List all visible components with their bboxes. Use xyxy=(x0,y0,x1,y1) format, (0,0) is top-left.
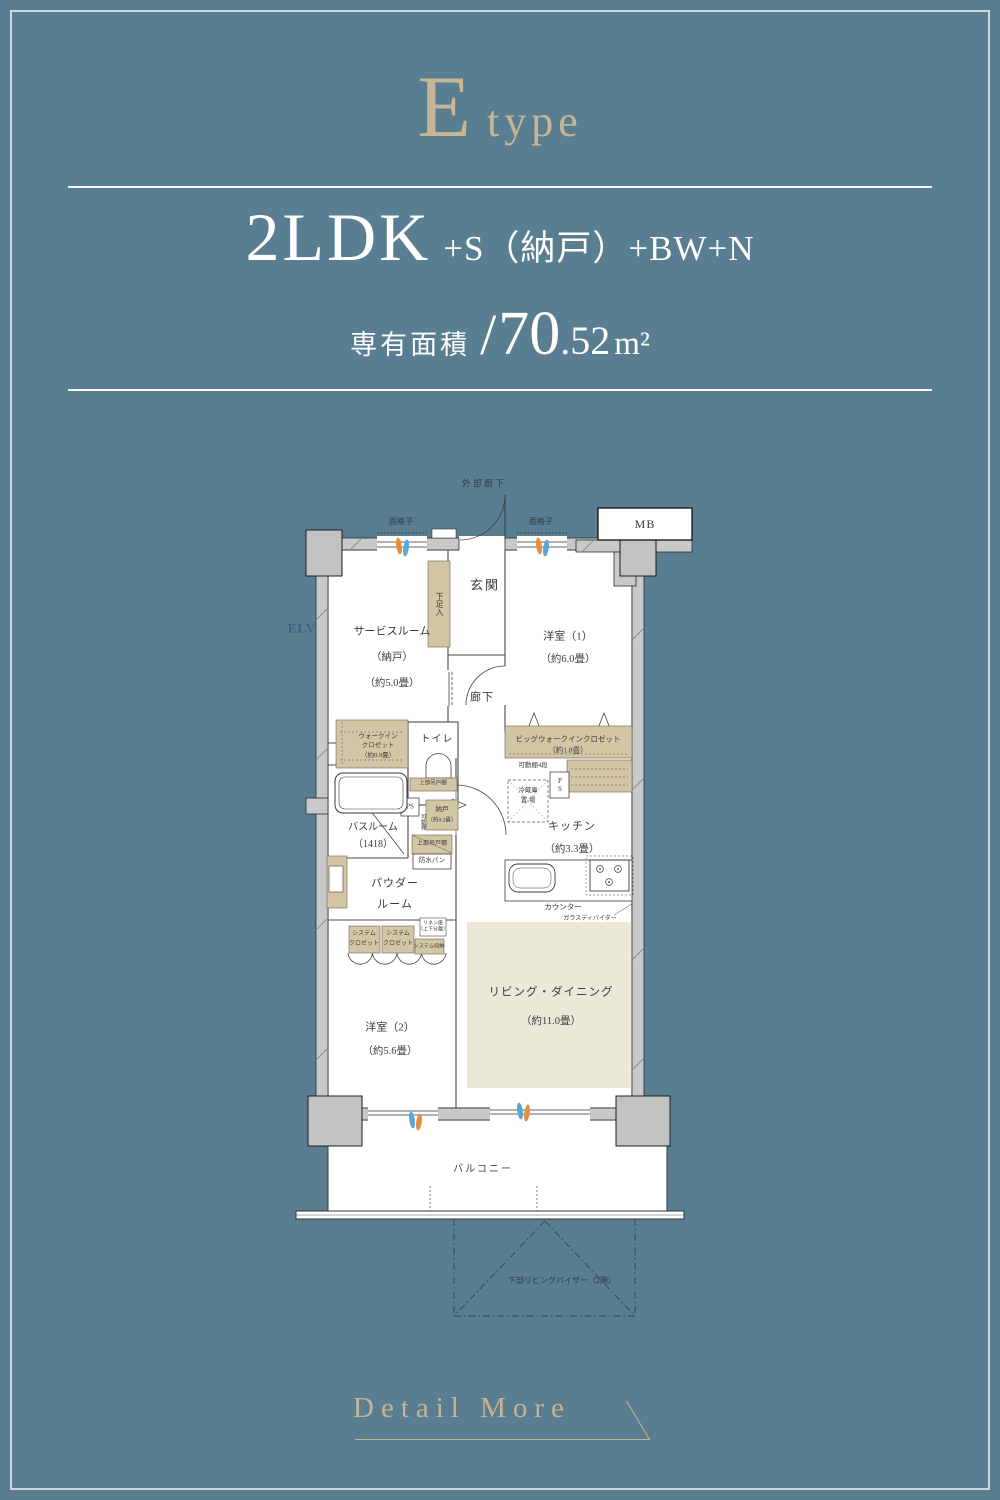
label-big-wic-size: （約1.8畳） xyxy=(548,746,587,754)
type-word: type xyxy=(487,97,583,146)
label-sys-closet-b2: クロゼット xyxy=(383,941,413,947)
label-movable-shelf: 可動棚 xyxy=(419,814,425,831)
room-label-western2: 洋室（2） xyxy=(365,1023,415,1034)
label-grille-right: 面格子 xyxy=(529,518,553,526)
room-label-western1-size: （約6.0畳） xyxy=(540,655,595,666)
area-value-int: 70 xyxy=(498,300,560,368)
plan-name-line: 2LDK+S（納戸）+BW+N xyxy=(0,200,1000,275)
room-label-service-size: （約5.0畳） xyxy=(364,679,419,690)
label-wic-2: クロゼット xyxy=(362,743,395,750)
area-value-dec: .52 xyxy=(560,318,610,363)
area-unit: m² xyxy=(614,326,650,362)
label-fridge: 冷蔵庫 xyxy=(518,788,538,795)
label-balcony: バルコニー xyxy=(453,1165,513,1175)
label-wic: ウォークイン xyxy=(359,734,398,741)
plan-name: 2LDK xyxy=(245,199,431,275)
label-movable-shelf-4: 可動棚4段 xyxy=(518,763,547,770)
detail-more-label: Detail More xyxy=(353,1392,571,1424)
room-label-kitchen-size: （約3.3畳） xyxy=(544,845,599,856)
divider-bottom xyxy=(68,389,932,391)
room-label-bathroom-size: （1418） xyxy=(353,840,393,850)
divider-top xyxy=(68,186,932,188)
etype-page: { "colors": { "background": "#597d91", "… xyxy=(0,0,1000,1500)
label-upper-cabinet-2: 上部吊戸棚 xyxy=(417,841,447,847)
plan-suffix: +S（納戸）+BW+N xyxy=(443,229,754,268)
room-label-service-2: （納戸） xyxy=(371,653,413,664)
label-visor-note: 下部リビングバイザー（2階） xyxy=(508,1277,616,1285)
label-meter-box: MB xyxy=(635,518,656,530)
room-label-hallway: 廊下 xyxy=(470,693,494,704)
room-label-living: リビング・ダイニング xyxy=(489,987,614,999)
label-sys-closet-a2: クロゼット xyxy=(349,941,379,947)
floorplan-drawing xyxy=(280,460,720,1340)
label-storeroom-size: （約0.3畳） xyxy=(428,818,457,824)
label-waterproof-pan: 防水パン xyxy=(419,858,445,865)
room-label-living-size: （約11.0畳） xyxy=(521,1017,581,1028)
label-exterior-corridor: 外部廊下 xyxy=(462,480,506,489)
area-slash: / xyxy=(480,302,496,367)
room-label-genkan: 玄関 xyxy=(470,579,500,592)
label-storeroom: 納戸 xyxy=(436,807,449,814)
room-label-service: サービスルーム xyxy=(354,627,431,638)
type-letter: E xyxy=(417,59,473,156)
label-ps-1: PS xyxy=(556,777,563,793)
detail-more-link[interactable]: Detail More xyxy=(353,1392,651,1444)
label-big-wic: ビッグウォークインクロゼット xyxy=(516,735,621,743)
label-sys-storage: システム収納 xyxy=(414,944,445,949)
label-grille-left: 面格子 xyxy=(389,518,413,526)
room-label-western2-size: （約5.6畳） xyxy=(362,1047,417,1058)
label-ps-2: PS xyxy=(406,804,414,811)
label-counter: カウンター xyxy=(544,903,582,911)
label-upper-cabinet-1: 上部吊戸棚 xyxy=(419,781,447,787)
label-sys-closet-b: システム xyxy=(386,931,410,937)
label-shoe-box: 下足入 xyxy=(435,592,443,616)
room-label-powder: パウダー xyxy=(371,879,419,890)
room-label-bathroom: バスルーム xyxy=(348,823,398,833)
label-wic-size: （約0.9畳） xyxy=(361,753,395,760)
area-line: 専有面積/70.52m² xyxy=(0,296,1000,388)
label-fridge-2: 置 場 xyxy=(521,798,536,805)
area-label: 専有面積 xyxy=(350,330,470,360)
label-elevator: ELV xyxy=(288,622,317,635)
room-label-powder-2: ルーム xyxy=(377,900,413,911)
floorplan: 外部廊下 面格子 面格子 MB ELV 玄関 下足入 サービスルーム （納戸） … xyxy=(280,460,720,1340)
label-linen-2: （上下分離） xyxy=(418,928,448,933)
label-linen: リネン庫 xyxy=(423,922,443,927)
label-sys-closet-a: システム xyxy=(352,931,376,937)
room-label-western1: 洋室（1） xyxy=(543,632,593,643)
detail-more-underline xyxy=(355,1439,650,1440)
room-label-toilet: トイレ xyxy=(421,735,454,745)
room-label-kitchen: キッチン xyxy=(548,822,596,833)
page-title: Etype xyxy=(0,64,1000,152)
detail-more-arrow-icon xyxy=(626,1401,650,1440)
label-glass-divider: ガラスディバイダー xyxy=(563,916,616,922)
